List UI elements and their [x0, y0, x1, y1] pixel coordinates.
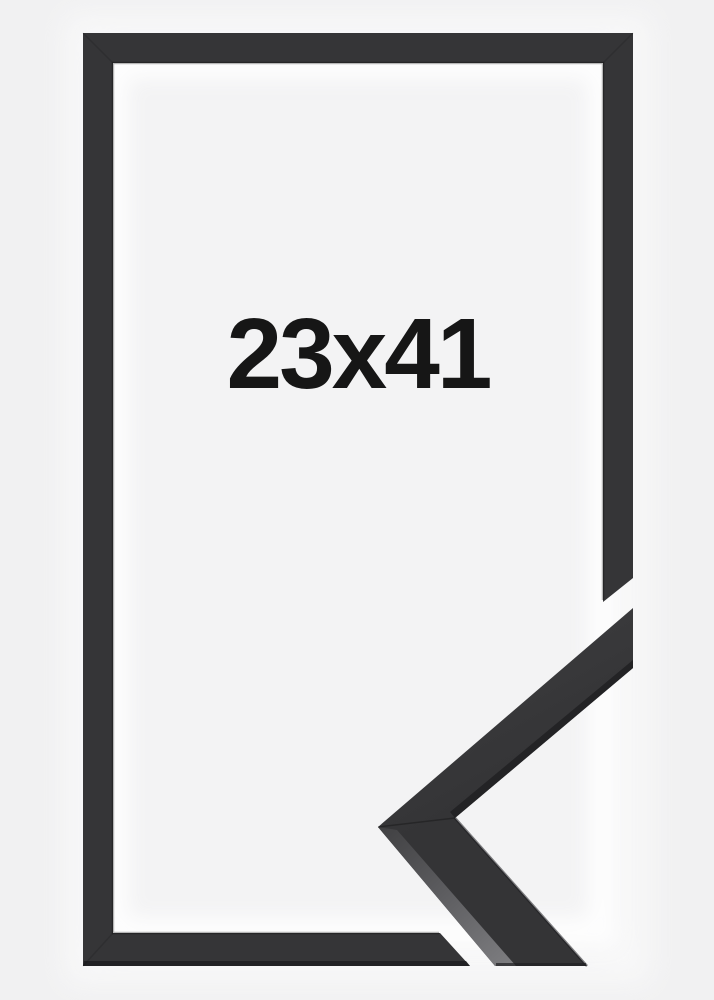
inner-mat: [113, 63, 603, 933]
product-image: 23x41: [0, 0, 714, 1000]
frame-bottom-edge-shadow: [83, 961, 470, 966]
size-label: 23x41: [226, 298, 489, 410]
frame-product-graphic: 23x41: [0, 0, 714, 1000]
